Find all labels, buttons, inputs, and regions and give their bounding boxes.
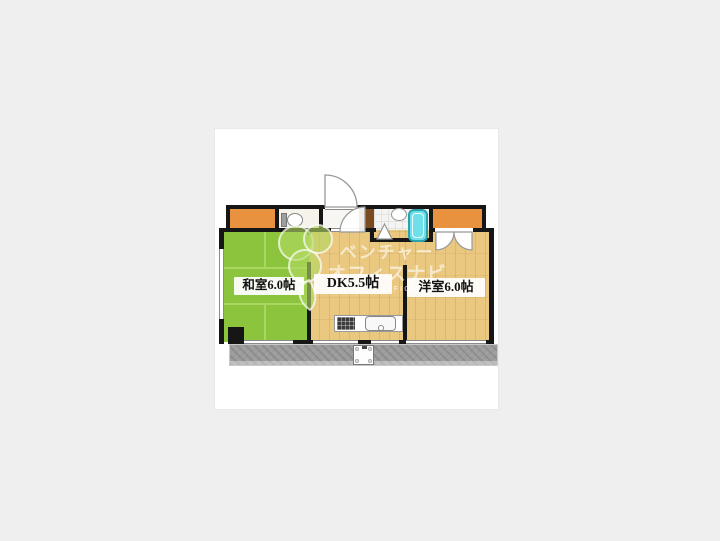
- room-label-dk: DK5.5帖: [314, 274, 392, 294]
- wall-segment: [219, 319, 224, 344]
- room-label-yoshitsu: 洋室6.0帖: [407, 278, 485, 297]
- floor-plan-canvas: ベンチャー オフィスナビ VENTURE OFFICE NAVI 和室6.0帖 …: [214, 128, 499, 410]
- wall-segment: [219, 228, 224, 249]
- window: [406, 340, 486, 344]
- page: { "page": { "background": "#efefef", "ca…: [0, 0, 720, 541]
- stove-icon: [337, 317, 355, 330]
- tatami-line: [264, 232, 266, 269]
- window: [371, 340, 399, 344]
- interior-door-swing-icon: [335, 205, 367, 235]
- tatami-line: [264, 303, 266, 342]
- wall-corner-block: [228, 327, 244, 344]
- window: [313, 340, 358, 344]
- closet-right: [429, 207, 482, 230]
- wall-segment: [293, 340, 313, 344]
- wall-segment: [399, 340, 406, 344]
- faucet-icon: [378, 325, 384, 331]
- wall-segment: [429, 205, 433, 242]
- window: [219, 249, 224, 319]
- closet-left: [228, 207, 277, 230]
- washbasin-icon: [391, 208, 407, 221]
- wall-segment: [489, 228, 494, 344]
- wall-segment: [358, 340, 371, 344]
- wall-segment: [486, 340, 494, 344]
- window: [244, 340, 293, 344]
- washing-machine-pan-icon: [353, 345, 374, 365]
- room-label-washitsu: 和室6.0帖: [234, 277, 304, 295]
